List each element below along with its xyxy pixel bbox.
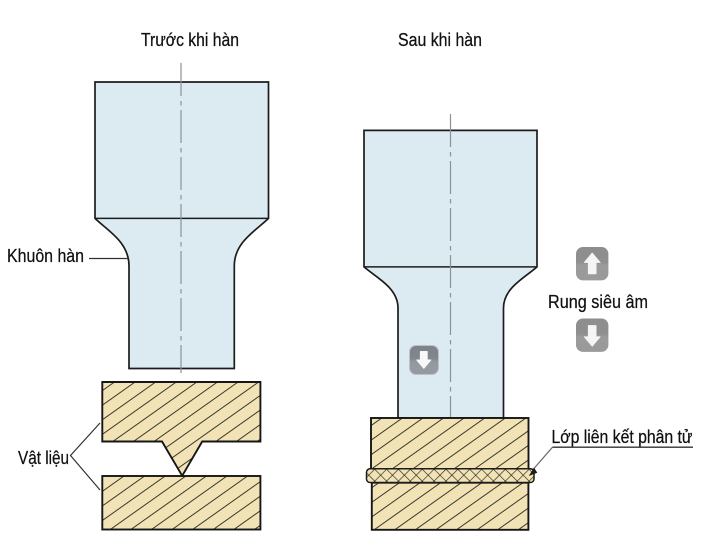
svg-text:Khuôn hàn: Khuôn hàn bbox=[7, 246, 84, 266]
svg-text:Lớp liên kết phân tử: Lớp liên kết phân tử bbox=[552, 427, 693, 447]
svg-text:Vật liệu: Vật liệu bbox=[18, 448, 69, 468]
svg-text:Sau khi hàn: Sau khi hàn bbox=[398, 30, 482, 50]
svg-text:Trước khi hàn: Trước khi hàn bbox=[141, 30, 239, 50]
svg-text:Rung siêu âm: Rung siêu âm bbox=[548, 292, 648, 312]
